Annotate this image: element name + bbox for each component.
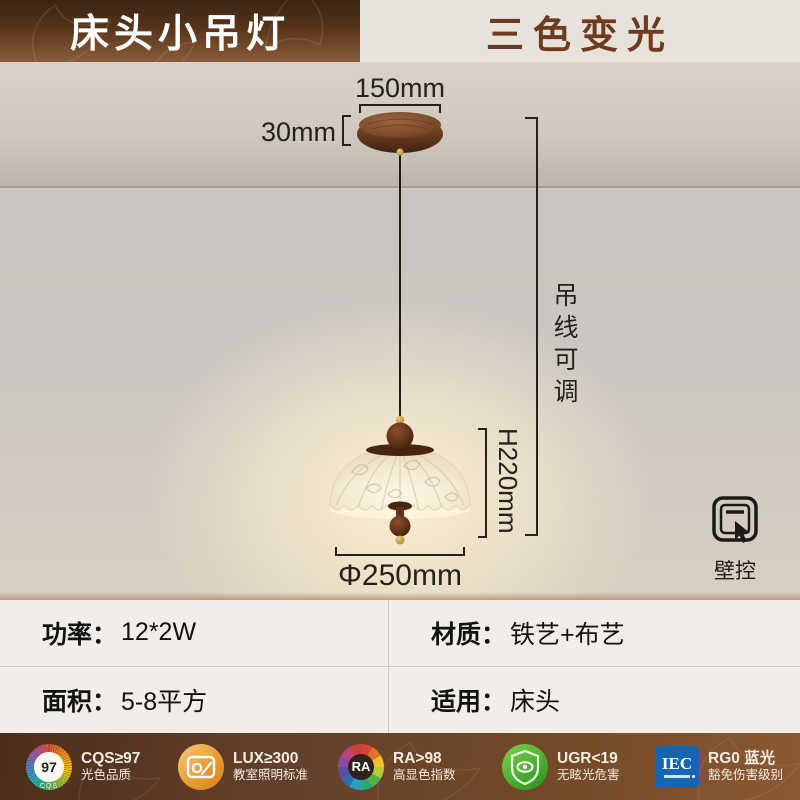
spec-label: 功率： (42, 615, 117, 651)
pendant-lamp-illustration (0, 62, 800, 600)
spec-label: 材质： (431, 615, 506, 651)
spec-cell-usage: 适用： 床头 (388, 667, 800, 734)
scene-bottom-shadow (0, 592, 800, 600)
bottom-finial (388, 502, 412, 545)
iec-cert-icon: IEC (655, 746, 699, 788)
cert-line1: RA>98 (393, 749, 456, 768)
fabric-shade (330, 444, 470, 511)
product-title: 床头小吊灯 (70, 3, 290, 59)
canopy-pin (397, 149, 404, 156)
iec-label: IEC (662, 755, 692, 772)
anti-glare-shield-icon (502, 744, 548, 790)
spec-cell-material: 材质： 铁艺+布艺 (388, 600, 800, 667)
cert-line2: 高显色指数 (393, 768, 456, 784)
cert-badge-ugr: UGR<19 无眩光危害 (502, 744, 620, 790)
cert-line1: RG0 蓝光 (708, 749, 783, 768)
lamp-diameter-bracket (335, 547, 465, 556)
wire-dimension-line (536, 117, 538, 536)
header-feature-panel: 三色变光 (360, 0, 800, 62)
cert-badge-cqs: 97 CQS CQS≥97 光色品质 (26, 744, 140, 790)
lamp-diameter-label: Φ250mm (328, 559, 472, 593)
lamp-height-label: H220mm (492, 428, 523, 538)
cert-line2: 豁免伤害级别 (708, 768, 783, 784)
wall-control: 壁控 (708, 495, 762, 585)
spec-label: 适用： (431, 682, 506, 718)
cert-line1: CQS≥97 (81, 749, 140, 768)
spec-value: 床头 (510, 682, 560, 718)
header-bar: 床头小吊灯 三色变光 (0, 0, 800, 62)
lamp-height-bracket (478, 428, 487, 538)
cert-line2: 光色品质 (81, 768, 140, 784)
wall-switch-icon (710, 495, 760, 547)
feature-badge: 三色变光 (486, 4, 674, 59)
walnut-ball-top (387, 423, 414, 450)
spec-label: 面积： (42, 682, 117, 718)
spec-table: 功率： 12*2W 材质： 铁艺+布艺 面积： 5-8平方 适用： 床头 (0, 600, 800, 733)
spec-cell-area: 面积： 5-8平方 (0, 667, 388, 734)
certification-footer: 97 CQS CQS≥97 光色品质 LUX≥300 教室照明标准 RA RA>… (0, 733, 800, 800)
cert-badge-iec: IEC RG0 蓝光 豁免伤害级别 (655, 746, 783, 788)
wall-control-label: 壁控 (708, 555, 762, 585)
spec-value: 5-8平方 (121, 682, 207, 718)
spec-value: 铁艺+布艺 (510, 615, 625, 651)
cert-line2: 无眩光危害 (557, 768, 620, 784)
canopy-height-bracket (342, 115, 351, 146)
header-title-panel: 床头小吊灯 (0, 0, 360, 62)
color-render-wheel-icon: RA (338, 744, 384, 790)
canopy-width-label: 150mm (348, 73, 452, 104)
cert-line1: LUX≥300 (233, 749, 308, 768)
cqs-sub: CQS (26, 783, 72, 790)
cqs-quality-icon: 97 CQS (26, 744, 72, 790)
canopy-width-bracket (359, 104, 441, 113)
cert-badge-ra: RA RA>98 高显色指数 (338, 744, 456, 790)
adjustable-wire-label: 吊线可调 (546, 282, 582, 410)
ra-value: RA (348, 754, 374, 780)
wire-line-top-tick (525, 117, 538, 119)
spec-cell-power: 功率： 12*2W (0, 600, 388, 667)
classroom-lighting-icon (178, 744, 224, 790)
cert-badge-lux: LUX≥300 教室照明标准 (178, 744, 308, 790)
spec-value: 12*2W (121, 618, 196, 647)
cert-line2: 教室照明标准 (233, 768, 308, 784)
cqs-value: 97 (34, 752, 64, 782)
product-scene: 150mm 30mm 吊线可调 H220mm Φ250mm 壁控 (0, 62, 800, 600)
wire-line-bottom-tick (525, 534, 538, 536)
canopy-height-label: 30mm (256, 117, 336, 148)
cert-line1: UGR<19 (557, 749, 620, 768)
ceiling-canopy (357, 112, 443, 153)
iec-underline (664, 775, 690, 778)
